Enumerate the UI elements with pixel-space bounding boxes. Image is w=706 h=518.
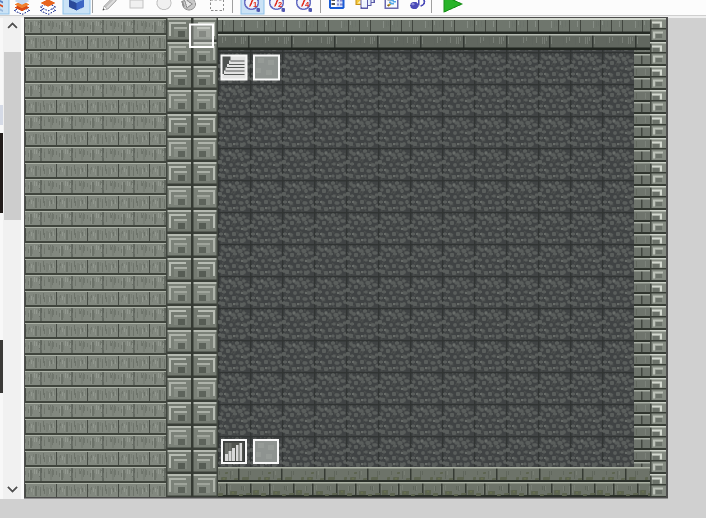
svg-text:1: 1 — [253, 0, 257, 9]
svg-text:2: 2 — [278, 0, 282, 9]
